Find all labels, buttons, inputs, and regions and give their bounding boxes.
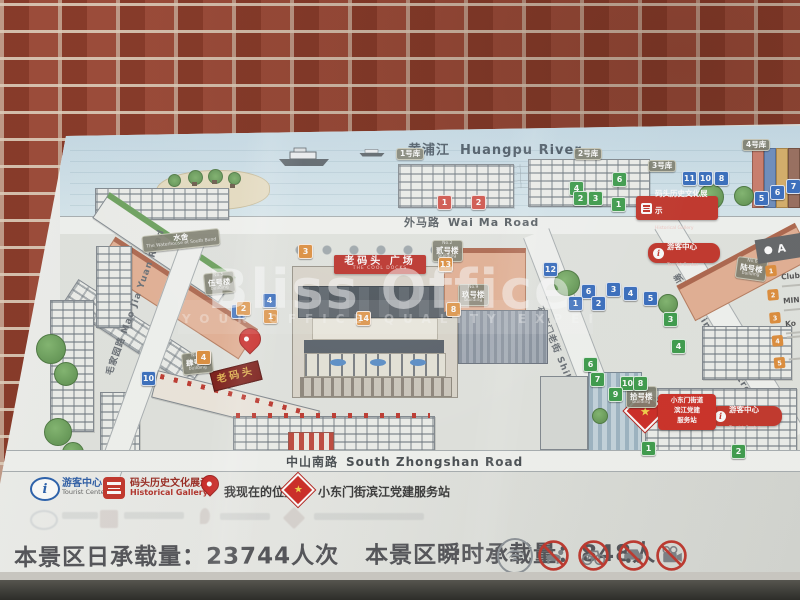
ghost-bar (124, 512, 184, 519)
side-panel-item: 2 MIN (767, 286, 800, 312)
side-panel-item: 4 (772, 332, 800, 347)
beach-hut (192, 182, 197, 186)
map-marker-blue: 2 (591, 296, 606, 311)
side-panel-item: 3 Ko (769, 309, 800, 335)
item-label: MIN (783, 295, 800, 305)
capacity-daily: 本景区日承载量：23744人次 (14, 543, 339, 571)
wifi-arc (512, 558, 518, 565)
rowhouse (764, 148, 776, 208)
legend-gallery-text: 码头历史文化展示 Historical Gallery (130, 478, 210, 498)
riverfront-building (398, 164, 514, 208)
ghost-bar (220, 513, 270, 520)
rowhouse (776, 148, 788, 208)
item-label: Club (781, 271, 800, 282)
legend-reflection (24, 508, 454, 532)
item-label: Ko (785, 319, 797, 329)
side-panel-item: 5 (774, 354, 800, 369)
tree (734, 186, 754, 206)
legend-party-emblem-icon: ★ (281, 473, 315, 507)
tourist-tag-en: Tourist Center (667, 263, 698, 268)
waima-en: Wai Ma Road (448, 216, 539, 229)
tree (554, 270, 580, 296)
legend-gallery-en: Historical Gallery (130, 489, 210, 498)
item-subline (787, 334, 800, 338)
tourist-info-icon: i (653, 248, 664, 259)
river-label-zh: 黄浦江 (408, 143, 450, 158)
legend-gallery-icon (103, 477, 125, 499)
gallery-icon (641, 203, 652, 214)
item-number: 3 (769, 312, 781, 324)
no-bicycles-icon (577, 539, 610, 572)
side-panel-item: 1 Club (765, 262, 800, 288)
tree (658, 294, 678, 314)
beach-tree (168, 174, 181, 187)
ferry-ship-icon (358, 146, 386, 158)
maojiayuan-zh: 毛家园路 (105, 336, 128, 377)
ghost-icon (30, 510, 58, 530)
item-number: 2 (767, 289, 779, 301)
plaza-pool (410, 359, 426, 366)
party-line2: 滨江党建 (658, 406, 716, 416)
bullet-dot-icon (764, 246, 773, 255)
plaza-north-roof (298, 286, 452, 318)
beach-hut (230, 184, 235, 188)
no-pets-icon (537, 539, 570, 572)
legend-tourist-info-icon: i (30, 477, 60, 501)
zhongshan-road-label: 中山南路South Zhongshan Road (286, 453, 523, 470)
gallery-tag-zh: 码头历史文化展示 (655, 189, 708, 215)
tree (44, 418, 72, 446)
gallery-tag-en: Historical Gallery (655, 226, 694, 231)
waima-zh: 外马路 (404, 216, 440, 229)
map-marker-blue: 4 (623, 286, 638, 301)
star-glyph: ★ (640, 405, 651, 417)
map-marker-blue: 5 (643, 291, 658, 306)
item-number: 4 (772, 335, 784, 347)
waima-road-label: 外马路Wai Ma Road (404, 214, 539, 230)
rowhouse (752, 148, 764, 208)
map-marker-blue: 6 (581, 284, 596, 299)
legend-tourist-en: Tourist Center (62, 489, 107, 496)
beach-hut (212, 180, 217, 184)
plaza-base (300, 377, 452, 397)
party-line3: 服务站 (658, 416, 716, 426)
right-building (540, 376, 588, 450)
map-marker-blue: 1 (568, 296, 583, 311)
side-panel-header-text: A (776, 241, 787, 255)
star-glyph: ★ (294, 485, 303, 495)
plaza-pool (330, 359, 346, 366)
ghost-bar (62, 512, 98, 519)
map-marker-green: 6 (583, 357, 598, 372)
map-marker-blue: 4 (262, 293, 277, 308)
map-marker-orange: 3 (298, 244, 313, 259)
right-building-salmon (444, 248, 526, 312)
shikumen-houses (458, 310, 548, 364)
tourist-center-map-tag: i 游客中心 Tourist Center (648, 243, 720, 263)
item-number: 5 (774, 357, 786, 369)
tourist-info-icon: i (715, 411, 726, 422)
plaza-banner-en: THE COOL DOCKS (334, 267, 426, 272)
colored-rowhouses (752, 148, 800, 208)
map-marker-blue: 3 (606, 282, 621, 297)
tree (36, 334, 66, 364)
zhongshan-en: South Zhongshan Road (346, 455, 523, 469)
building-tag-text: No.2 (436, 242, 459, 247)
tree (54, 362, 78, 386)
zhongshan-zh: 中山南路 (286, 455, 338, 469)
photo-scene: 黄浦江Huangpu River 外马路Wai Ma Road (0, 0, 800, 600)
ghost-icon (200, 508, 210, 524)
map-marker-blue: 8 (714, 171, 729, 186)
map-marker-green: 4 (671, 339, 686, 354)
historical-gallery-map-tag: 码头历史文化展示 Historical Gallery (636, 196, 718, 220)
tourist-tag-zh: 游客中心 (729, 405, 759, 414)
plaza-banner: 老码头 广场 THE COOL DOCKS (334, 255, 426, 274)
party-service-station-map-tag: 小东门街道 滨江党建 服务站 (658, 394, 716, 430)
party-line1: 小东门街道 (658, 396, 716, 406)
item-subline (789, 356, 800, 360)
rowhouse (788, 148, 800, 208)
building-tag: 3号库 (648, 160, 676, 172)
building-tag-text: 3号库 (652, 161, 672, 170)
riverfront-building (528, 159, 650, 207)
legend-tourist-text: 游客中心 Tourist Center (62, 478, 107, 496)
plaza-courtyard (312, 318, 438, 340)
plaza-pool (370, 359, 386, 366)
tree (592, 408, 608, 424)
ferry-ship-icon (276, 146, 332, 168)
tourist-tag-zh: 游客中心 (667, 242, 697, 251)
ghost-icon (283, 507, 306, 530)
tourist-tag-en: Tourist Center (729, 426, 760, 431)
river-label: 黄浦江Huangpu River (408, 139, 582, 158)
no-filming-icon (655, 539, 688, 572)
map-sign-board: 黄浦江Huangpu River 外马路Wai Ma Road (0, 0, 800, 600)
legend-party-text: 小东门街滨江党建服务站 (318, 483, 450, 500)
plaza-south-roof (304, 340, 444, 353)
no-vehicles-icon (617, 539, 650, 572)
river-label-en: Huangpu River (460, 143, 582, 158)
ghost-icon (100, 510, 118, 528)
ghost-bar (314, 513, 424, 520)
map-marker-orange: 2 (236, 301, 251, 316)
laomatou-gate-sign: 老码头 (209, 360, 262, 392)
left-tall-building (100, 392, 140, 470)
tourist-center-map-tag: i 游客中心 Tourist Center (710, 406, 782, 426)
map-marker-green: 3 (663, 312, 678, 327)
item-number: 1 (765, 265, 777, 277)
wifi-icon (497, 538, 533, 574)
map-marker-orange: 1 (263, 309, 278, 324)
tree (62, 442, 84, 464)
